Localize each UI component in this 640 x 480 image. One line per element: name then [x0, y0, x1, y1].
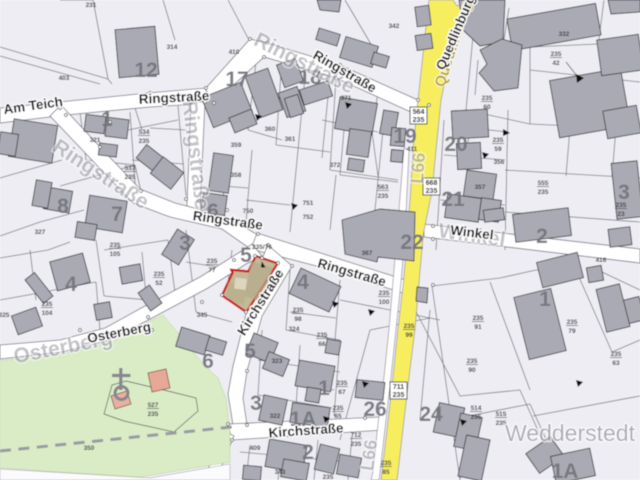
svg-text:99: 99	[405, 332, 413, 339]
svg-text:357: 357	[475, 184, 486, 191]
svg-text:2: 2	[302, 441, 314, 464]
svg-text:77: 77	[208, 267, 216, 274]
svg-text:235: 235	[323, 474, 334, 480]
svg-text:1: 1	[539, 288, 551, 311]
svg-text:105: 105	[110, 251, 121, 258]
svg-text:235: 235	[567, 319, 578, 326]
svg-text:235: 235	[538, 189, 549, 196]
svg-text:235: 235	[393, 392, 405, 399]
svg-text:235: 235	[482, 95, 493, 102]
svg-text:52: 52	[155, 280, 163, 287]
svg-text:8: 8	[57, 195, 69, 218]
svg-text:235: 235	[611, 351, 622, 358]
svg-text:85: 85	[382, 469, 390, 476]
svg-text:26: 26	[363, 398, 386, 421]
svg-text:563: 563	[378, 184, 389, 191]
svg-text:7: 7	[111, 203, 123, 226]
svg-text:555: 555	[538, 180, 549, 187]
svg-text:235: 235	[404, 323, 415, 330]
svg-text:372: 372	[330, 162, 341, 169]
svg-text:343: 343	[275, 469, 286, 476]
svg-text:235: 235	[333, 405, 344, 412]
svg-text:5: 5	[244, 340, 256, 363]
svg-text:3: 3	[618, 181, 630, 204]
svg-text:409: 409	[250, 445, 261, 452]
svg-text:100: 100	[379, 299, 390, 306]
svg-text:752: 752	[303, 214, 314, 221]
svg-text:314: 314	[167, 44, 178, 51]
svg-text:104: 104	[42, 310, 53, 317]
svg-text:79: 79	[568, 328, 576, 335]
svg-text:3: 3	[250, 392, 262, 415]
svg-text:322: 322	[270, 413, 281, 420]
svg-text:324: 324	[289, 326, 300, 333]
svg-text:360: 360	[265, 126, 276, 133]
svg-text:342: 342	[389, 23, 400, 30]
svg-text:20: 20	[444, 133, 467, 156]
svg-text:235: 235	[42, 301, 53, 308]
svg-text:235: 235	[551, 51, 562, 58]
svg-text:2: 2	[536, 225, 548, 248]
svg-text:235: 235	[379, 290, 390, 297]
svg-text:6: 6	[202, 350, 214, 373]
svg-text:327: 327	[35, 229, 46, 236]
svg-text:90: 90	[468, 367, 476, 374]
svg-text:98: 98	[294, 316, 302, 323]
svg-text:66: 66	[318, 341, 326, 348]
svg-text:345: 345	[197, 312, 208, 319]
svg-text:Wedderstedt: Wedderstedt	[505, 420, 636, 446]
svg-text:5: 5	[240, 244, 252, 267]
svg-text:23: 23	[617, 211, 625, 218]
svg-text:711: 711	[393, 384, 404, 391]
svg-text:514: 514	[471, 405, 482, 412]
svg-text:533: 533	[125, 165, 136, 172]
svg-text:21: 21	[441, 188, 465, 211]
svg-text:60: 60	[483, 104, 491, 111]
svg-text:359: 359	[231, 142, 242, 149]
svg-text:67: 67	[338, 389, 346, 396]
svg-text:235: 235	[207, 258, 218, 265]
svg-text:712: 712	[351, 432, 362, 439]
svg-text:231: 231	[86, 2, 97, 9]
svg-text:323: 323	[272, 358, 283, 365]
svg-text:91: 91	[474, 324, 482, 331]
svg-text:321: 321	[90, 137, 101, 144]
svg-text:1: 1	[318, 377, 330, 400]
svg-text:235: 235	[381, 460, 392, 467]
svg-text:235: 235	[426, 188, 438, 195]
svg-text:235: 235	[154, 271, 165, 278]
svg-text:527: 527	[148, 402, 159, 409]
svg-text:416: 416	[596, 257, 607, 264]
svg-text:235: 235	[378, 193, 389, 200]
svg-text:4: 4	[65, 273, 77, 296]
svg-text:235: 235	[148, 411, 159, 418]
svg-text:367: 367	[362, 250, 373, 257]
svg-text:235: 235	[467, 358, 478, 365]
svg-text:12: 12	[134, 59, 157, 82]
svg-text:1A: 1A	[552, 460, 579, 480]
svg-text:63: 63	[612, 360, 620, 367]
svg-text:235: 235	[110, 242, 121, 249]
svg-text:235: 235	[413, 117, 425, 124]
svg-text:403: 403	[59, 75, 70, 82]
svg-text:534: 534	[139, 129, 150, 136]
svg-text:235: 235	[317, 332, 328, 339]
svg-text:668: 668	[426, 180, 438, 187]
svg-text:332: 332	[559, 31, 570, 38]
svg-text:564: 564	[413, 109, 425, 116]
svg-text:356: 356	[494, 159, 505, 166]
svg-text:325: 325	[0, 312, 10, 319]
svg-text:17: 17	[225, 68, 248, 91]
svg-text:751: 751	[303, 200, 314, 207]
svg-text:235: 235	[493, 137, 504, 144]
svg-text:1: 1	[101, 108, 113, 131]
svg-text:235: 235	[139, 138, 150, 145]
svg-text:350: 350	[84, 445, 95, 452]
svg-text:235: 235	[471, 414, 482, 421]
svg-text:L66: L66	[407, 152, 429, 184]
svg-text:515: 515	[496, 411, 507, 418]
svg-text:235: 235	[293, 307, 304, 314]
svg-text:22: 22	[400, 231, 423, 254]
svg-text:65: 65	[334, 413, 342, 420]
svg-text:410: 410	[229, 49, 240, 56]
svg-text:235/76: 235/76	[252, 244, 272, 251]
svg-text:750: 750	[243, 208, 254, 215]
svg-text:235: 235	[337, 380, 348, 387]
svg-text:361: 361	[285, 136, 296, 143]
svg-text:4: 4	[297, 271, 309, 294]
svg-text:358: 358	[231, 172, 242, 179]
svg-text:19: 19	[393, 125, 416, 148]
svg-text:L66: L66	[357, 438, 381, 472]
svg-text:42: 42	[552, 60, 560, 67]
svg-text:24: 24	[419, 403, 443, 426]
svg-text:235: 235	[473, 315, 484, 322]
svg-text:3: 3	[179, 232, 191, 255]
svg-text:59: 59	[494, 146, 502, 153]
